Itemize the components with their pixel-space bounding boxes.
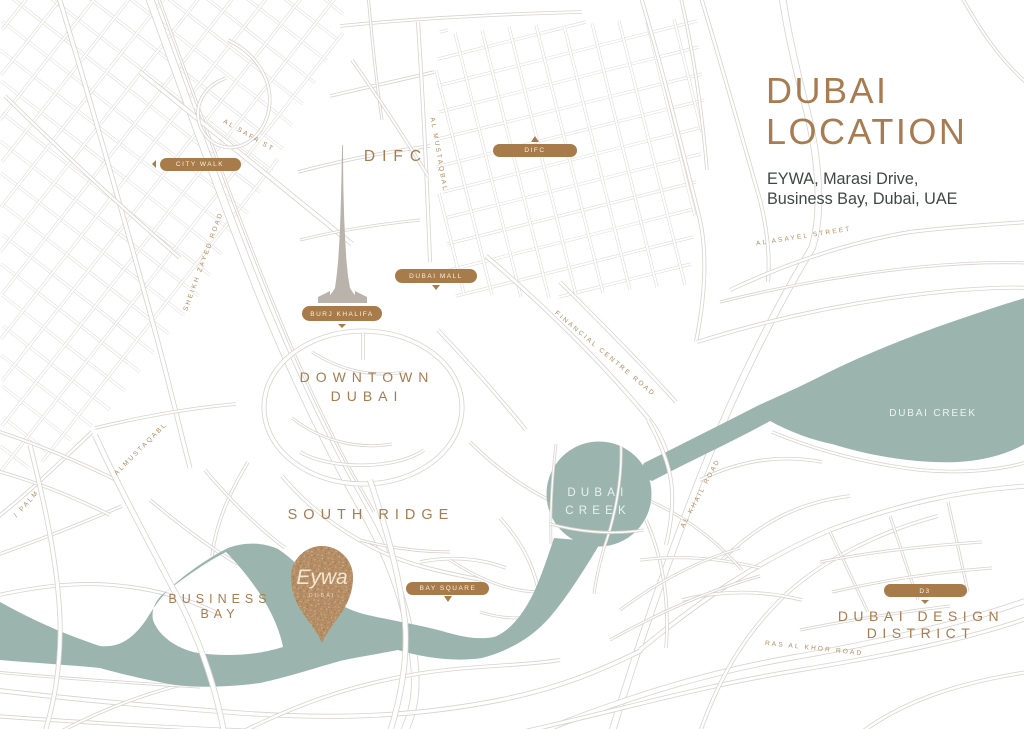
- svg-text:DUBAI MALL: DUBAI MALL: [409, 273, 463, 280]
- svg-text:DISTRICT: DISTRICT: [867, 625, 976, 641]
- svg-text:DUBAI CREEK: DUBAI CREEK: [889, 408, 977, 419]
- svg-text:Eywa: Eywa: [296, 566, 347, 589]
- svg-text:SOUTH RIDGE: SOUTH RIDGE: [288, 507, 455, 523]
- svg-text:BAY SQUARE: BAY SQUARE: [420, 585, 477, 592]
- svg-text:BURJ KHALIFA: BURJ KHALIFA: [310, 311, 374, 318]
- svg-text:DIFC: DIFC: [524, 147, 545, 154]
- svg-text:DIFC: DIFC: [364, 148, 428, 165]
- svg-text:CITY WALK: CITY WALK: [176, 161, 224, 168]
- svg-text:CREEK: CREEK: [565, 505, 631, 517]
- svg-text:DUBAI DESIGN: DUBAI DESIGN: [838, 608, 1004, 624]
- svg-text:EYWA, Marasi Drive,: EYWA, Marasi Drive,: [767, 170, 918, 188]
- svg-text:LOCATION: LOCATION: [766, 111, 967, 152]
- svg-text:D3: D3: [919, 588, 930, 595]
- svg-text:Business Bay, Dubai, UAE: Business Bay, Dubai, UAE: [767, 190, 958, 208]
- svg-text:DOWNTOWN: DOWNTOWN: [300, 369, 435, 385]
- svg-text:DUBAI: DUBAI: [331, 388, 404, 404]
- svg-text:DUBAI: DUBAI: [309, 593, 336, 599]
- svg-text:BUSINESS: BUSINESS: [168, 592, 271, 606]
- svg-text:BAY: BAY: [200, 607, 239, 621]
- svg-text:DUBAI: DUBAI: [766, 70, 889, 111]
- svg-text:DUBAI: DUBAI: [567, 487, 628, 499]
